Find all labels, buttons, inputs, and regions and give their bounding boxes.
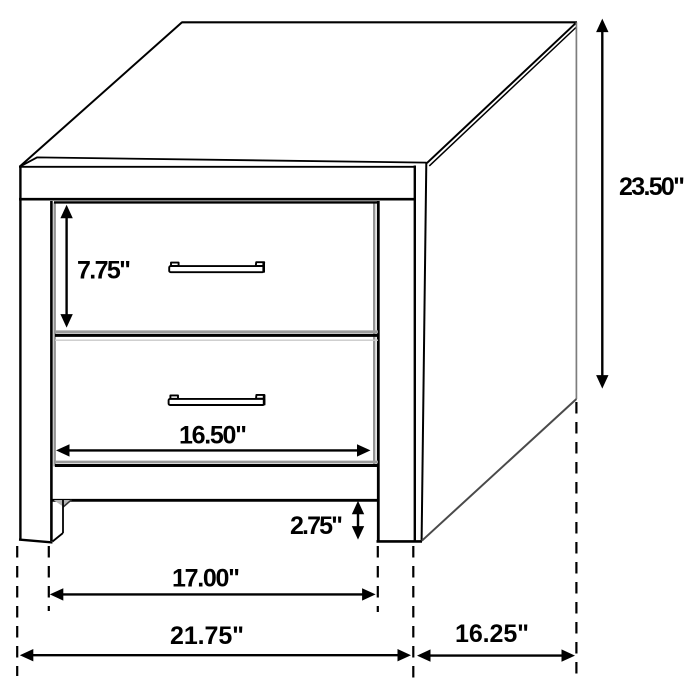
svg-text:23.50": 23.50" <box>619 173 685 201</box>
svg-text:2.75": 2.75" <box>290 512 343 540</box>
svg-text:21.75": 21.75" <box>170 622 244 650</box>
svg-text:16.25": 16.25" <box>455 620 529 648</box>
svg-text:16.50": 16.50" <box>179 422 247 450</box>
svg-text:7.75": 7.75" <box>77 257 131 285</box>
svg-text:17.00": 17.00" <box>172 565 240 593</box>
